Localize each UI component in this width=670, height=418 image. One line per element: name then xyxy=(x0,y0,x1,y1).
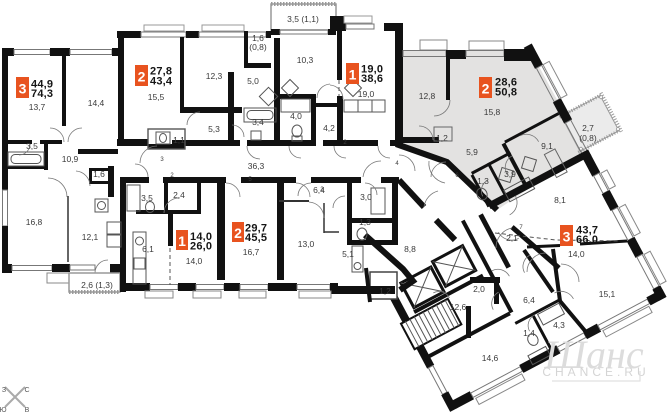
svg-text:43,4: 43,4 xyxy=(150,76,173,88)
svg-text:2: 2 xyxy=(482,81,490,97)
svg-text:2: 2 xyxy=(138,69,146,85)
svg-text:2,6 (1,3): 2,6 (1,3) xyxy=(81,280,113,290)
svg-text:1,6: 1,6 xyxy=(93,169,105,179)
svg-text:13,0: 13,0 xyxy=(298,239,315,249)
svg-text:8,8: 8,8 xyxy=(404,244,416,254)
svg-text:74,3: 74,3 xyxy=(31,88,53,100)
svg-text:14,0: 14,0 xyxy=(568,249,585,259)
svg-text:3: 3 xyxy=(19,81,27,97)
svg-text:3,5 (1,1): 3,5 (1,1) xyxy=(287,14,319,24)
svg-text:1,2: 1,2 xyxy=(379,286,391,296)
svg-text:З: З xyxy=(2,387,6,394)
svg-text:14,4: 14,4 xyxy=(88,98,105,108)
svg-text:36,3: 36,3 xyxy=(248,161,265,171)
svg-text:С: С xyxy=(24,387,29,394)
svg-text:15,5: 15,5 xyxy=(148,92,165,102)
svg-text:5,3: 5,3 xyxy=(208,124,220,134)
svg-text:1: 1 xyxy=(178,233,186,249)
svg-text:5,9: 5,9 xyxy=(466,147,478,157)
svg-text:2,1: 2,1 xyxy=(506,233,518,243)
svg-text:3,9: 3,9 xyxy=(504,169,516,179)
svg-text:(0,8): (0,8) xyxy=(579,133,597,143)
svg-text:2,0: 2,0 xyxy=(473,284,485,294)
svg-text:6,1: 6,1 xyxy=(142,244,154,254)
svg-text:8,1: 8,1 xyxy=(554,195,566,205)
svg-text:15,1: 15,1 xyxy=(599,289,616,299)
svg-text:16,7: 16,7 xyxy=(243,247,260,257)
svg-text:4,3: 4,3 xyxy=(553,320,565,330)
svg-text:2: 2 xyxy=(234,225,242,241)
svg-text:45,5: 45,5 xyxy=(245,232,267,244)
svg-text:(0,8): (0,8) xyxy=(249,42,267,52)
svg-text:19,0: 19,0 xyxy=(358,89,375,99)
svg-text:1,3: 1,3 xyxy=(477,176,489,186)
svg-text:16,8: 16,8 xyxy=(26,217,43,227)
svg-text:3,5: 3,5 xyxy=(141,193,153,203)
svg-text:12,3: 12,3 xyxy=(206,71,223,81)
svg-text:4,0: 4,0 xyxy=(290,111,302,121)
svg-text:26,0: 26,0 xyxy=(190,241,212,253)
svg-text:14,0: 14,0 xyxy=(186,256,203,266)
svg-text:12,1: 12,1 xyxy=(82,232,99,242)
svg-text:1,1: 1,1 xyxy=(173,135,185,145)
svg-text:В: В xyxy=(25,407,30,413)
svg-text:CHANCE.RU: CHANCE.RU xyxy=(542,365,649,379)
svg-text:38,6: 38,6 xyxy=(361,73,383,85)
svg-text:13,7: 13,7 xyxy=(29,102,46,112)
svg-text:Ю: Ю xyxy=(0,407,7,413)
svg-text:4,2: 4,2 xyxy=(323,123,335,133)
svg-text:5,1: 5,1 xyxy=(342,249,354,259)
svg-text:10,9: 10,9 xyxy=(62,154,79,164)
svg-text:9,1: 9,1 xyxy=(541,141,553,151)
svg-text:2,7: 2,7 xyxy=(582,123,594,133)
svg-text:2,4: 2,4 xyxy=(173,190,185,200)
svg-text:6,4: 6,4 xyxy=(523,295,535,305)
svg-text:1: 1 xyxy=(349,67,357,83)
svg-text:3: 3 xyxy=(563,229,571,245)
svg-text:14,6: 14,6 xyxy=(482,353,499,363)
svg-text:50,8: 50,8 xyxy=(495,87,517,99)
svg-text:15,8: 15,8 xyxy=(484,107,501,117)
svg-text:1,3: 1,3 xyxy=(359,217,371,227)
svg-text:3,0: 3,0 xyxy=(360,192,372,202)
svg-text:12,8: 12,8 xyxy=(419,91,436,101)
svg-text:5,0: 5,0 xyxy=(247,76,259,86)
svg-text:66,0: 66,0 xyxy=(576,234,598,246)
svg-text:1,4: 1,4 xyxy=(523,328,535,338)
svg-text:3,4: 3,4 xyxy=(252,117,264,127)
svg-text:12,6: 12,6 xyxy=(450,302,467,312)
svg-text:1,2: 1,2 xyxy=(436,133,448,143)
svg-text:3,5: 3,5 xyxy=(26,141,38,151)
svg-text:10,3: 10,3 xyxy=(297,55,314,65)
